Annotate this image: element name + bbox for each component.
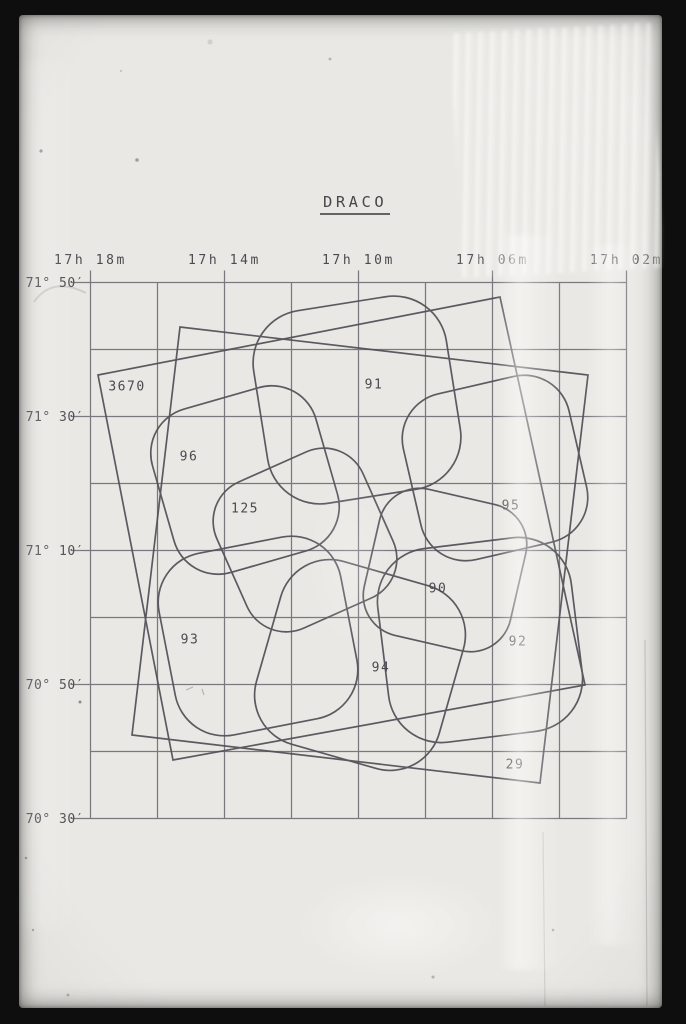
scan-vignette: [19, 15, 662, 1008]
scanned-plate-frame: { "title": {"text": "DRACO"}, "colors": …: [0, 0, 686, 1024]
chart-title: DRACO: [320, 194, 390, 215]
